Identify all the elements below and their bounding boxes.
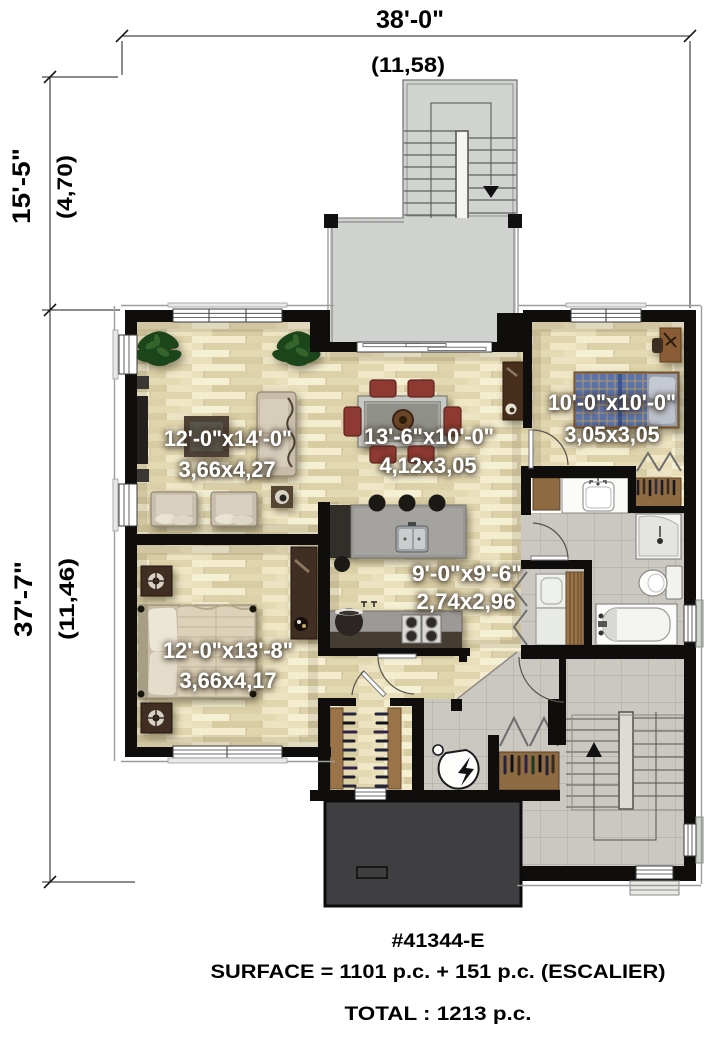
svg-text:3,66x4,17: 3,66x4,17 bbox=[180, 668, 277, 693]
svg-text:SURFACE = 1101 p.c. + 151 p.c.: SURFACE = 1101 p.c. + 151 p.c. (ESCALIER… bbox=[211, 961, 666, 983]
svg-text:12'-0"x13'-8": 12'-0"x13'-8" bbox=[163, 638, 293, 663]
svg-text:2,74x2,96: 2,74x2,96 bbox=[417, 589, 516, 614]
svg-text:4,12x3,05: 4,12x3,05 bbox=[380, 453, 477, 478]
svg-text:15'-5": 15'-5" bbox=[8, 148, 36, 224]
svg-text:9'-0"x9'-6": 9'-0"x9'-6" bbox=[412, 561, 522, 586]
svg-text:3,05x3,05: 3,05x3,05 bbox=[565, 422, 660, 447]
svg-text:#41344-E: #41344-E bbox=[392, 930, 485, 952]
svg-text:38'-0": 38'-0" bbox=[376, 6, 444, 34]
svg-text:(4,70): (4,70) bbox=[54, 155, 77, 219]
svg-text:(11,58): (11,58) bbox=[371, 54, 445, 77]
svg-text:12'-0"x14'-0": 12'-0"x14'-0" bbox=[164, 426, 292, 451]
svg-text:TOTAL : 1213 p.c.: TOTAL : 1213 p.c. bbox=[345, 1003, 532, 1025]
svg-text:(11,46): (11,46) bbox=[56, 558, 79, 640]
svg-text:10'-0"x10'-0": 10'-0"x10'-0" bbox=[548, 390, 676, 415]
svg-text:37'-7": 37'-7" bbox=[10, 561, 38, 637]
svg-text:13'-6"x10'-0": 13'-6"x10'-0" bbox=[364, 424, 494, 449]
svg-text:3,66x4,27: 3,66x4,27 bbox=[179, 457, 276, 482]
